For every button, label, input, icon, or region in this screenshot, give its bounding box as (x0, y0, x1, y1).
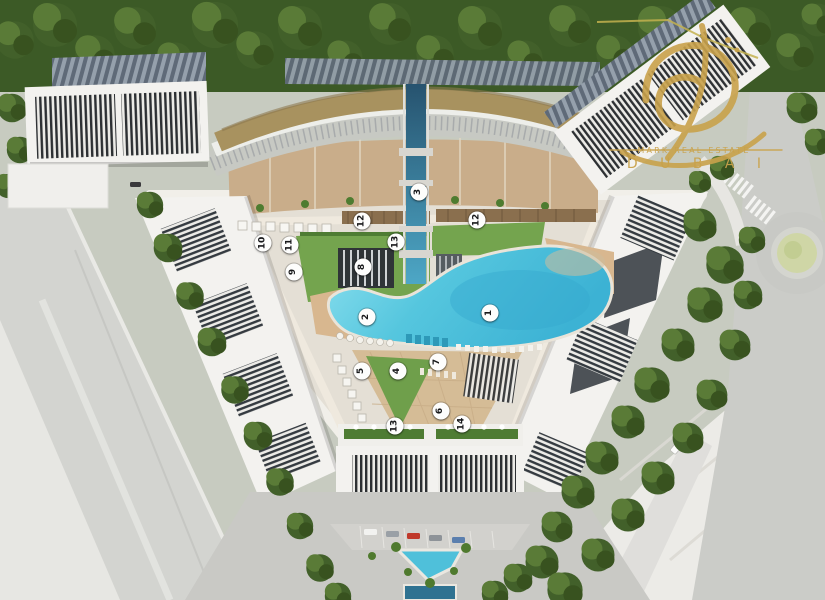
roof-louvers (35, 94, 117, 159)
masterplan-render: 12345678910111212131314 MARK REAL ESTATE… (0, 0, 825, 600)
bridge (399, 250, 433, 258)
pergola-band (436, 209, 596, 222)
bridge (399, 148, 433, 156)
car (130, 182, 141, 187)
pavilion (463, 353, 519, 404)
solar-array (285, 58, 600, 86)
roof-louvers (121, 91, 201, 156)
water-channel (399, 84, 433, 284)
bridge (399, 226, 433, 232)
bridge (399, 180, 433, 186)
masterplan-scene (0, 0, 825, 600)
beach-shallow (545, 248, 605, 276)
